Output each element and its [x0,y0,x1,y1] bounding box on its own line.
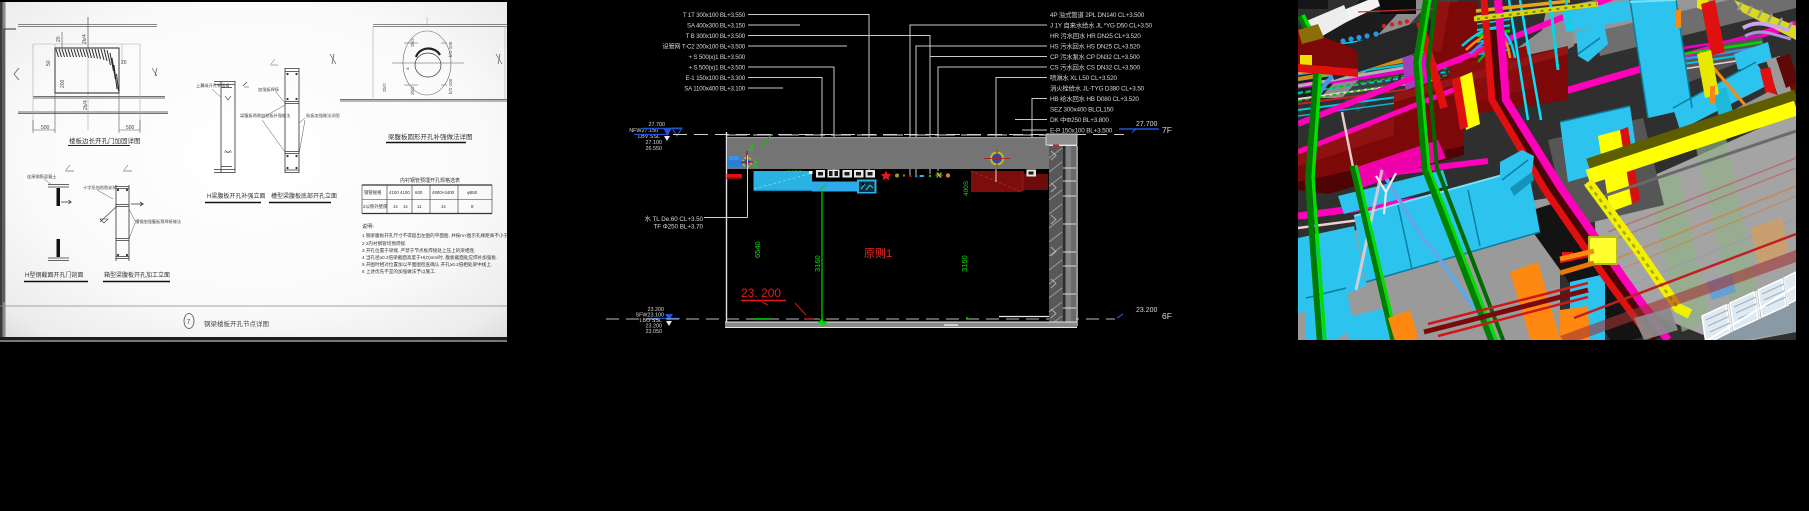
svg-text:加强板焊接: 加强板焊接 [258,86,280,93]
svg-text:20: 20 [121,60,127,66]
svg-text:HS 污水回水 HS DN25 CL+3.520: HS 污水回水 HS DN25 CL+3.520 [1050,42,1140,51]
svg-text:26.550: 26.550 [646,146,663,152]
svg-text:梁腹板两侧加劲板补强做法: 梁腹板两侧加劲板补强做法 [240,112,290,119]
svg-text:喷淋水 XL L50 CL+3.520: 喷淋水 XL L50 CL+3.520 [1050,73,1117,82]
svg-text:槽型梁腹板底部开孔立面: 槽型梁腹板底部开孔立面 [271,192,337,200]
svg-text:500: 500 [126,125,135,131]
svg-text:E-P 150x100 BL+3.500: E-P 150x100 BL+3.500 [1050,128,1113,135]
svg-text:消火栓给水 JL-TYG D380 CL+3.50: 消火栓给水 JL-TYG D380 CL+3.50 [1050,84,1145,93]
svg-text:4 当孔径≥0.2倍梁截面高度于H(O)mm时, 腹板截面: 4 当孔径≥0.2倍梁截面高度于H(O)mm时, 腹板截面处应焊补加强板. [362,254,497,261]
svg-text:箱型梁腹板开孔加工立面: 箱型梁腹板开孔加工立面 [104,271,170,279]
svg-text:11: 11 [417,204,422,209]
svg-text:梁腹板圆形开孔补强做法详图: 梁腹板圆形开孔补强做法详图 [388,132,473,141]
svg-text:b/2-100: b/2-100 [448,78,453,94]
svg-text:H梁腹板开孔补强立面: H梁腹板开孔补强立面 [207,192,265,200]
svg-text:钢梁楼板开孔节点详图: 钢梁楼板开孔节点详图 [204,319,269,328]
svg-text:+ S 500(x)1 BL+3.500: + S 500(x)1 BL+3.500 [688,54,745,61]
svg-text:2b/2: 2b/2 [410,86,415,95]
svg-text:E-1 150x100 BL+3.300: E-1 150x100 BL+3.300 [686,75,746,82]
svg-text:23.050: 23.050 [646,329,663,335]
svg-text:150: 150 [753,159,759,168]
svg-text:3160: 3160 [813,255,822,272]
svg-text:2b/4: 2b/4 [82,34,88,44]
svg-text:设管网 T-C2 200x100 BL+3.500: 设管网 T-C2 200x100 BL+3.500 [662,43,745,51]
svg-text:T 1T 300x100 BL+3.550: T 1T 300x100 BL+3.550 [683,12,746,19]
svg-text:连接钢筋混凝土: 连接钢筋混凝土 [27,173,56,180]
svg-text:23.200: 23.200 [1136,307,1158,314]
svg-text:20: 20 [56,36,62,42]
svg-text:6 上述优先不宜的加强做法予以施工.: 6 上述优先不宜的加强做法予以施工. [362,268,436,275]
svg-text:600: 600 [415,190,423,195]
svg-text:钢管规格: 钢管规格 [364,189,382,196]
svg-text:1s: 1s [403,204,408,209]
svg-text:说明:: 说明: [362,222,374,230]
svg-text:HR 污水回水 HR DN25 CL+3.520: HR 污水回水 HR DN25 CL+3.520 [1050,31,1141,40]
svg-text:500: 500 [41,125,50,131]
svg-text:CS 污水回水 CS DN32 CL+3.500: CS 污水回水 CS DN32 CL+3.500 [1050,63,1140,72]
svg-text:DK 中Φ250 BL+3.800: DK 中Φ250 BL+3.800 [1050,115,1109,124]
svg-text:2公称外壁厚: 2公称外壁厚 [363,203,388,210]
svg-text:楼板边长开孔门加固详图: 楼板边长开孔门加固详图 [69,136,141,145]
svg-text:2b/4: 2b/4 [83,100,89,110]
svg-text:4P 溢式管道 2PL DN140 CL+3.500: 4P 溢式管道 2PL DN140 CL+3.500 [1050,10,1145,19]
svg-text:23. 200: 23. 200 [741,286,781,300]
svg-text:5 开图时相对位置加以平面图检查确认 开孔≥0.2倍相处: 5 开图时相对位置加以平面图检查确认 开孔≥0.2倍相处梁中线上. [362,261,492,268]
svg-text:7F: 7F [1162,125,1172,135]
svg-text:2b/2: 2b/2 [410,38,415,47]
svg-text:27.700: 27.700 [1136,121,1158,128]
svg-text:1s: 1s [441,204,446,209]
svg-text:槽钢加强腹板预焊接做法: 槽钢加强腹板预焊接做法 [135,218,181,225]
svg-text:CP 污水泵水 CP DN32 CL+3.500: CP 污水泵水 CP DN32 CL+3.500 [1050,52,1140,61]
svg-text:SA 400x300 BL+3.150: SA 400x300 BL+3.150 [687,23,746,30]
svg-text:SEZ 300x400 BLCL150: SEZ 300x400 BLCL150 [1050,107,1114,114]
svg-text:4100 4100: 4100 4100 [389,190,410,195]
svg-text:2 2内衬钢管均预焊接.: 2 2内衬钢管均预焊接. [362,240,406,247]
svg-text:+ S 500(x)1 BL+3.500: + S 500(x)1 BL+3.500 [688,65,745,72]
svg-text:J 1Y 自来水给水 JL *YG D50 CL+3.50: J 1Y 自来水给水 JL *YG D50 CL+3.50 [1050,21,1153,30]
svg-text:6540: 6540 [753,241,762,258]
svg-text:H型钢截面开孔门剖面: H型钢截面开孔门剖面 [25,271,83,279]
svg-text:TF Φ250 BL+3.70: TF Φ250 BL+3.70 [654,224,704,231]
svg-text:十字形加劲肋安装: 十字形加劲肋安装 [83,184,117,191]
svg-text:7: 7 [187,319,191,326]
svg-text:1s: 1s [393,204,398,209]
svg-text:内衬钢管预埋开孔规格选表: 内衬钢管预埋开孔规格选表 [400,177,460,184]
svg-text:4800×4400: 4800×4400 [432,190,455,195]
svg-text:400S: 400S [963,180,970,196]
svg-text:350: 350 [749,143,755,152]
svg-text:HB 给水回水 HB D080 CL+3.520: HB 给水回水 HB D080 CL+3.520 [1050,94,1139,103]
svg-text:3 开孔位置于梁端, 严禁于节点板焊接处上压上的梁相连.: 3 开孔位置于梁端, 严禁于节点板焊接处上压上的梁相连. [362,247,475,254]
svg-text:贴板加强做法详图: 贴板加强做法详图 [306,112,340,119]
svg-text:2b/2: 2b/2 [382,83,387,92]
svg-text:b/2-100: b/2-100 [448,41,453,57]
svg-text:200: 200 [60,79,66,88]
svg-text:φ850: φ850 [467,190,478,195]
svg-text:原则1: 原则1 [864,247,892,260]
svg-text:3160: 3160 [960,255,969,272]
svg-text:T B 300x100 BL+3.500: T B 300x100 BL+3.500 [686,33,746,40]
svg-text:50: 50 [46,60,52,66]
svg-text:水 TL De.60 CL+3.50: 水 TL De.60 CL+3.50 [645,215,704,223]
svg-text:1 钢梁腹板开孔尺寸不得超出左图的平面图, 并按m×图示: 1 钢梁腹板开孔尺寸不得超出左图的平面图, 并按m×图示孔缘距离不小于m的连接肋… [362,232,507,239]
svg-text:上翼缘开孔补强板: 上翼缘开孔补强板 [196,82,230,89]
svg-text:SA 1100x400 BL+3.100: SA 1100x400 BL+3.100 [684,86,745,93]
svg-text:6F: 6F [1162,311,1172,321]
